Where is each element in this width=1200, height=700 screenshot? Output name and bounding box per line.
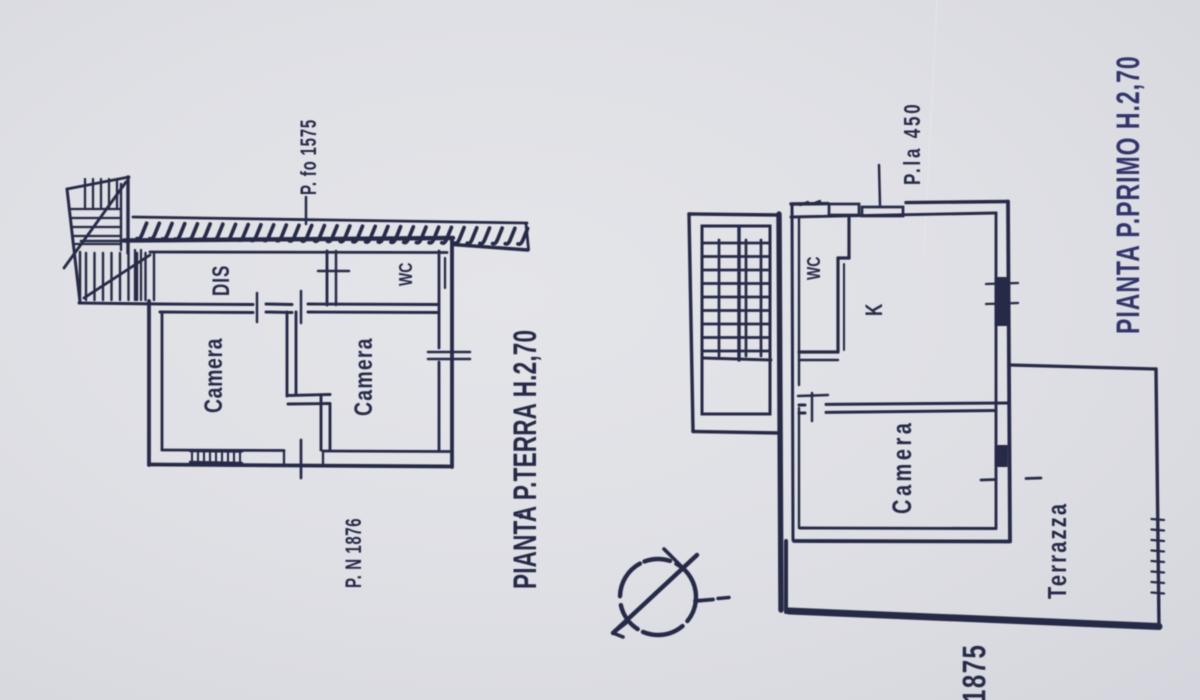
svg-text:WC: WC [803,257,825,280]
svg-text:Terrazza: Terrazza [1042,502,1071,599]
svg-text:P. N 1876: P. N 1876 [341,518,365,588]
svg-text:WC: WC [395,263,417,286]
svg-text:P. fo 1575: P. fo 1575 [296,119,320,195]
svg-text:DIS: DIS [208,265,234,296]
svg-text:5 1875: 5 1875 [957,644,993,700]
svg-text:Camera: Camera [887,420,918,514]
svg-text:Camera: Camera [200,338,228,413]
svg-text:PIANTA P.PRIMO H.2,70: PIANTA P.PRIMO H.2,70 [1109,55,1146,334]
svg-text:K: K [861,304,887,316]
svg-text:P.la 450: P.la 450 [901,101,926,185]
svg-text:Camera: Camera [350,337,378,416]
svg-text:PIANTA P.TERRA H.2,70: PIANTA P.TERRA H.2,70 [507,330,543,589]
